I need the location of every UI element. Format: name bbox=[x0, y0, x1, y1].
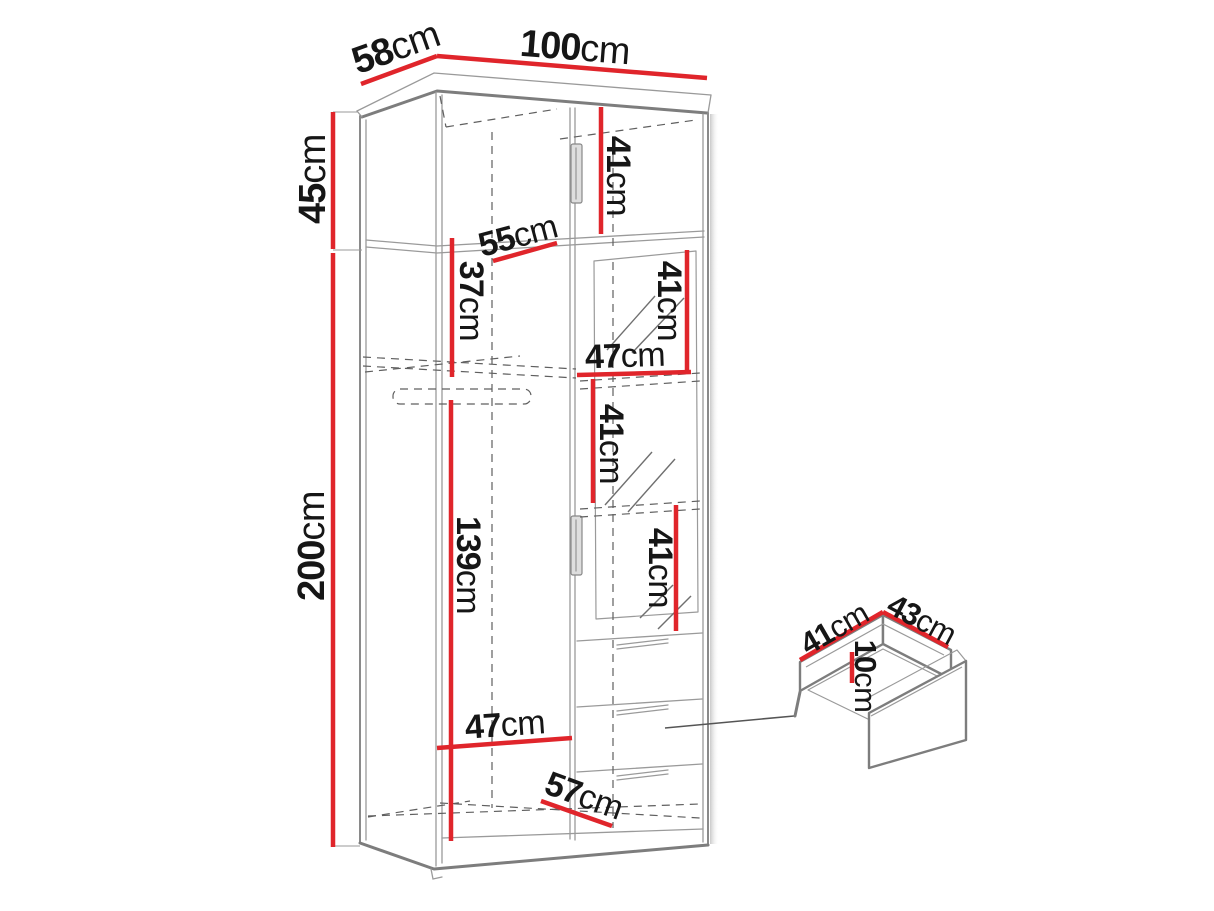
dim-label-41cm-low: 41cm bbox=[641, 528, 679, 608]
top-panel-upper-edge bbox=[357, 73, 711, 111]
dimension-labels: 58cm 100cm 45cm 200cm 41cm 55cm 37cm 41c… bbox=[291, 13, 962, 827]
dim-label-45cm: 45cm bbox=[292, 134, 334, 224]
drawer-left-tab bbox=[795, 692, 800, 716]
bottom-left-foot bbox=[431, 869, 442, 879]
dim-label-41cm-mid: 41cm bbox=[592, 404, 630, 484]
diagram-canvas: 58cm 100cm 45cm 200cm 41cm 55cm 37cm 41c… bbox=[0, 0, 1214, 911]
dim-label-47cm-upper: 47cm bbox=[584, 336, 665, 377]
top-panel-right-corner bbox=[708, 95, 711, 113]
doors bbox=[570, 108, 698, 840]
wardrobe-dimension-diagram: 58cm 100cm 45cm 200cm 41cm 55cm 37cm 41c… bbox=[0, 0, 1214, 911]
dim-label-200cm: 200cm bbox=[291, 491, 333, 601]
bottom-front-edge bbox=[360, 843, 708, 869]
cabinet-shadow bbox=[710, 114, 719, 844]
dim-label-37cm: 37cm bbox=[452, 261, 490, 341]
drawer-leader-line bbox=[665, 716, 794, 728]
dim-label-41cm-top: 41cm bbox=[599, 136, 637, 216]
dim-label-41cm-right-top: 41cm bbox=[650, 261, 688, 341]
dim-label-139cm: 139cm bbox=[449, 516, 487, 614]
cabinet-outline bbox=[357, 73, 719, 879]
drawer3-top-edge bbox=[577, 764, 702, 772]
drawer2-top-edge bbox=[577, 699, 702, 707]
dim-label-drawer-10cm: 10cm bbox=[849, 640, 884, 713]
dim-label-47cm-bottom: 47cm bbox=[464, 703, 547, 746]
hanging-rod bbox=[393, 389, 531, 404]
internal-drawers bbox=[577, 633, 702, 780]
drawer1-top-edge bbox=[577, 633, 702, 641]
floor-front-edge bbox=[442, 829, 703, 838]
dim-label-100cm: 100cm bbox=[518, 23, 631, 74]
